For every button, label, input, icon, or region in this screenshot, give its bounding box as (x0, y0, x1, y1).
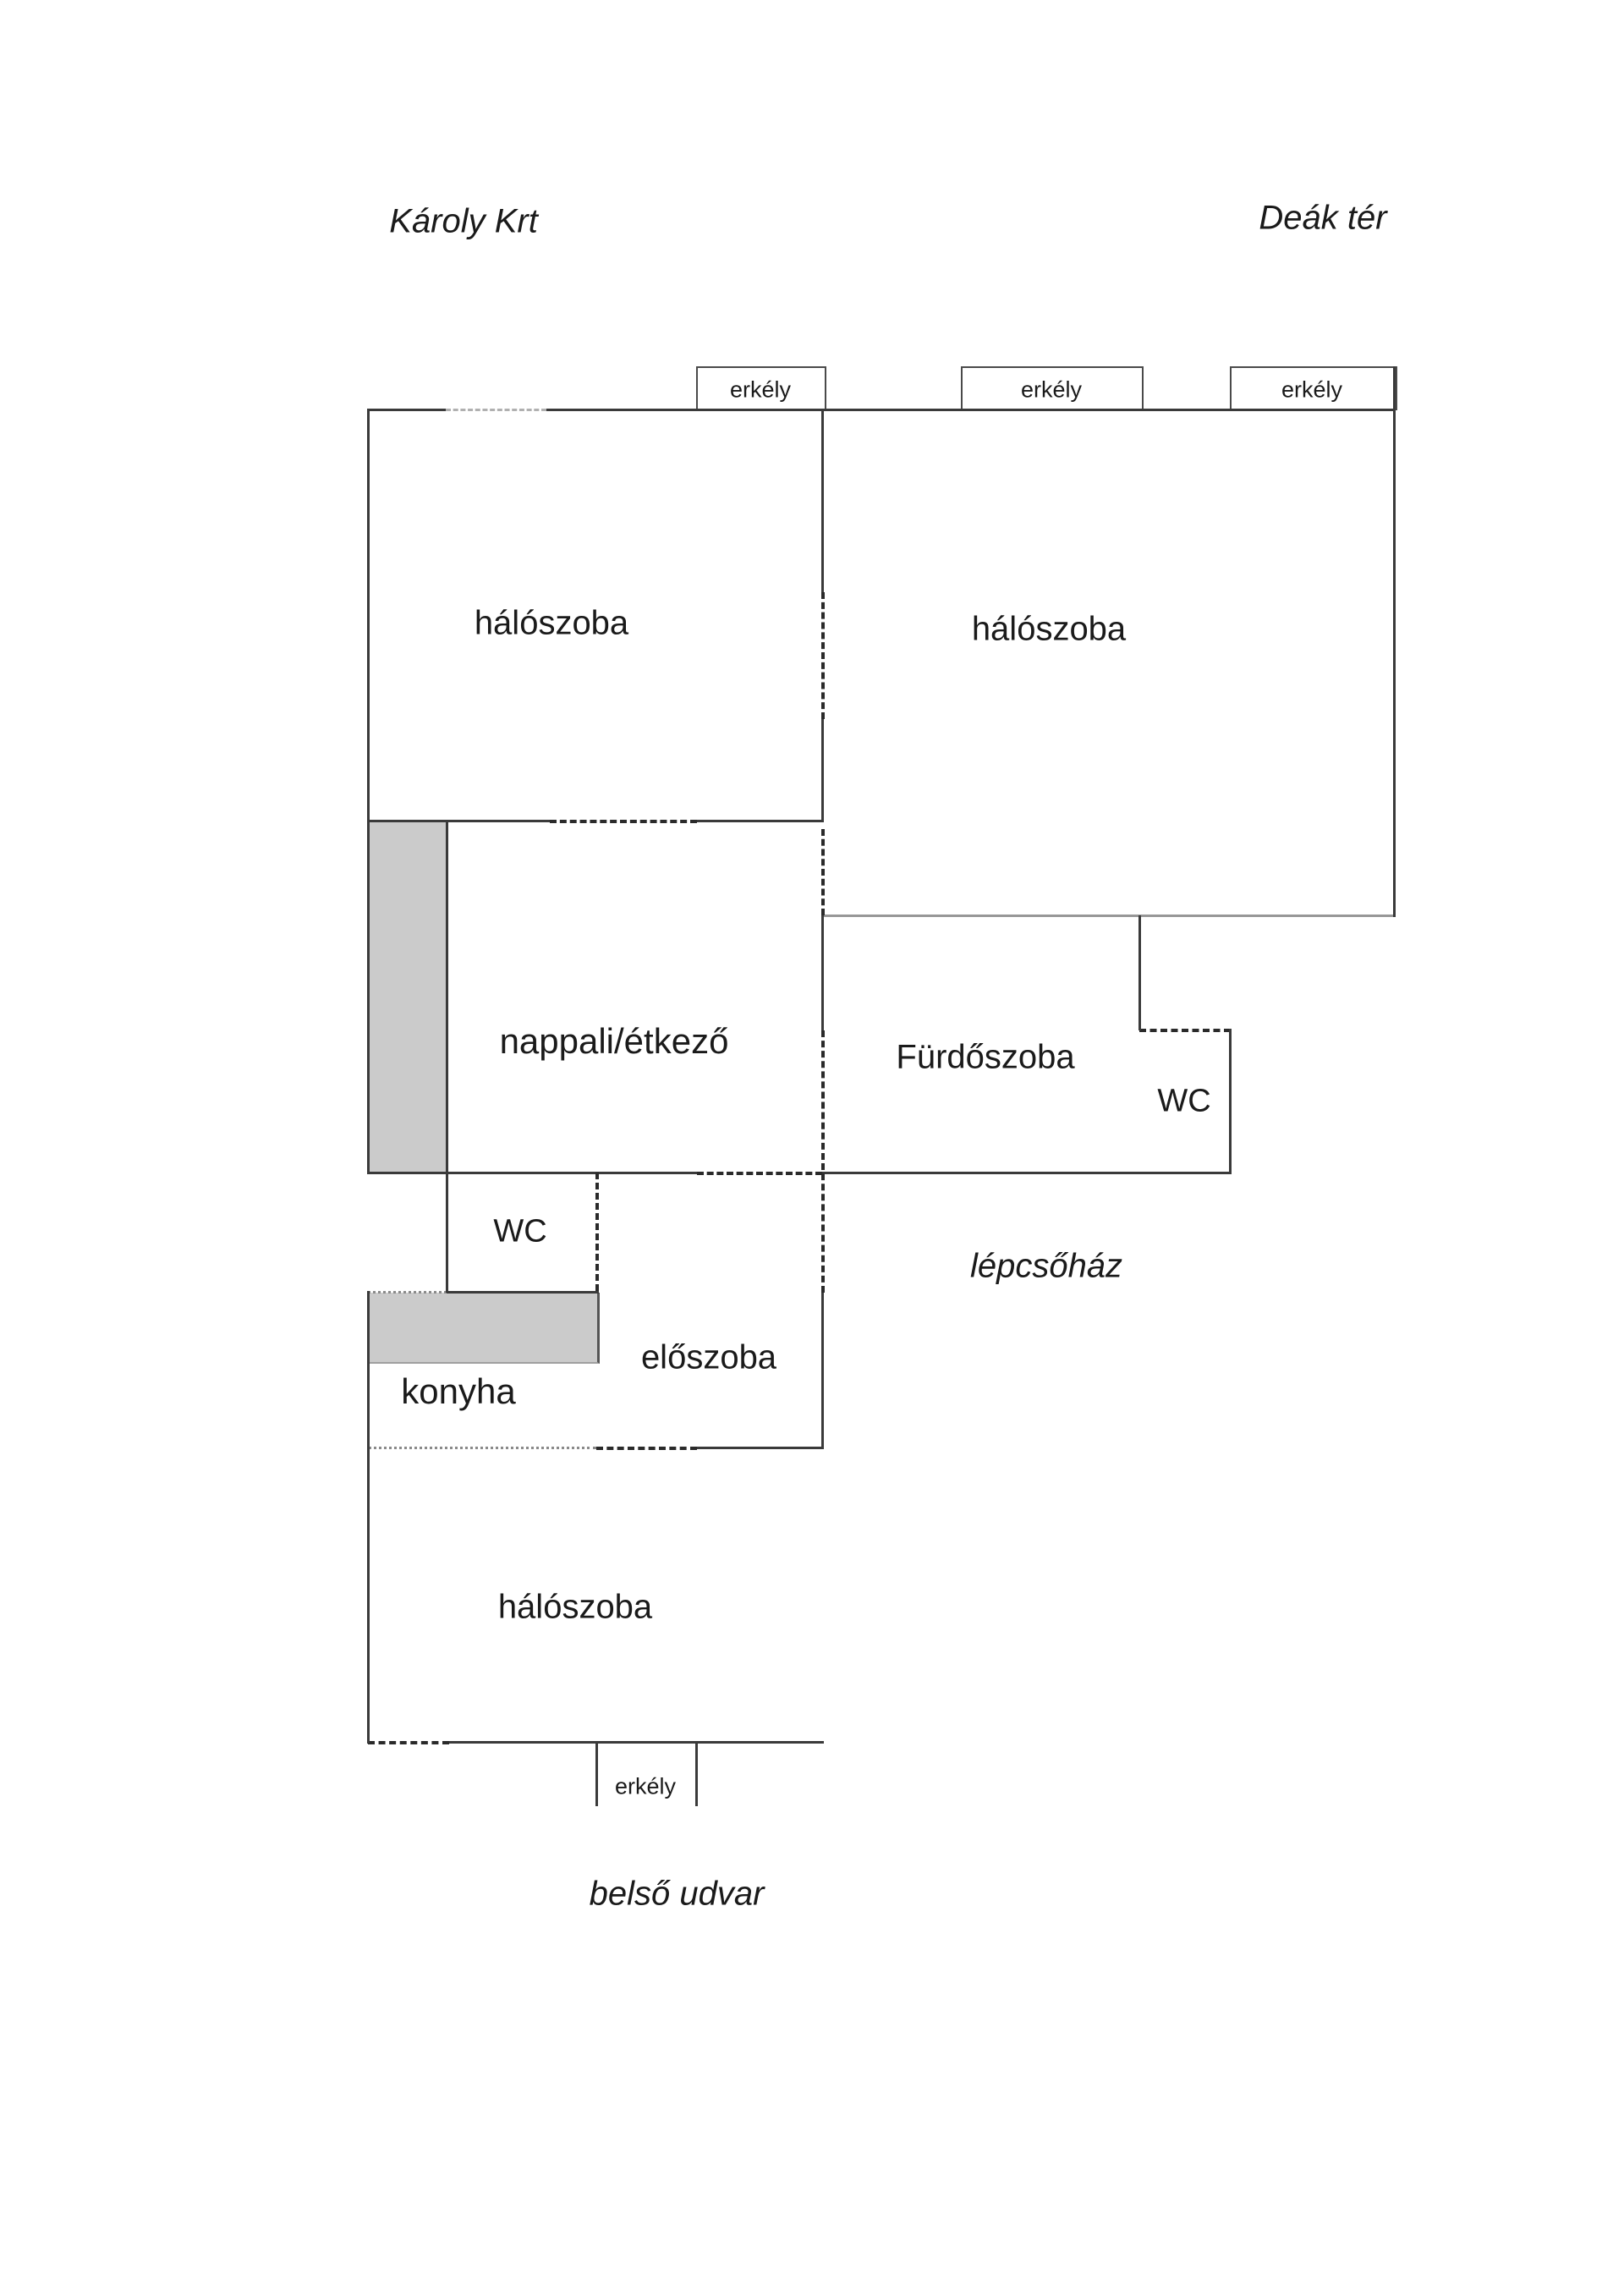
wall-segment (697, 1447, 824, 1449)
wall-segment (368, 409, 446, 411)
door-opening-segment (821, 1030, 825, 1293)
window-segment (446, 409, 546, 411)
room-label-hallway: előszoba (641, 1339, 776, 1377)
courtyard-label: belső udvar (590, 1876, 765, 1914)
room-label-wc-hall: WC (493, 1214, 546, 1250)
street-label-karoly-krt: Károly Krt (389, 203, 538, 241)
floor-plan: Károly Krt Deák tér lépcsőház belső udva… (0, 0, 1624, 2296)
wall-segment (368, 820, 550, 822)
opening-segment (368, 1447, 596, 1449)
door-opening-segment (596, 1447, 697, 1450)
room-label-bathroom: Fürdőszoba (896, 1039, 1074, 1077)
door-opening-segment (821, 829, 825, 915)
wall-segment (367, 1291, 370, 1744)
door-opening-segment (697, 1172, 822, 1175)
wall-segment (1393, 366, 1396, 917)
room-label-wc-bathroom: WC (1157, 1084, 1210, 1120)
room-label-living-dining: nappali/étkező (500, 1021, 729, 1062)
door-opening-segment (821, 592, 825, 719)
living-room-gray-block (368, 821, 447, 1173)
wall-segment (449, 1741, 824, 1744)
balcony-label-bottom: erkély (615, 1774, 676, 1800)
door-opening-segment (595, 1173, 599, 1291)
street-label-deak-ter: Deák tér (1259, 200, 1386, 238)
wall-segment (1138, 915, 1141, 1030)
room-label-kitchen: konyha (401, 1371, 515, 1412)
balcony-side-wall (595, 1743, 598, 1806)
wall-segment (821, 915, 824, 1030)
wall-segment (446, 821, 448, 1293)
wall-segment (1229, 1029, 1232, 1174)
room-label-bedroom-left: hálószoba (475, 605, 628, 643)
stairwell-label: lépcsőház (970, 1248, 1122, 1286)
window-opening-segment (368, 1741, 449, 1744)
wall-segment (822, 1172, 1231, 1174)
wall-segment (821, 409, 824, 592)
balcony-side-wall (695, 1743, 698, 1806)
wall-segment (821, 719, 824, 822)
balcony-label-top-1: erkély (730, 377, 791, 404)
balcony-label-top-2: erkély (1021, 377, 1082, 404)
balcony-label-top-3: erkély (1281, 377, 1342, 404)
wall-segment (697, 820, 824, 822)
wall-segment (447, 1291, 599, 1294)
room-label-bedroom-bottom: hálószoba (498, 1589, 652, 1627)
wall-segment (821, 1293, 824, 1448)
room-label-bedroom-right: hálószoba (972, 611, 1126, 649)
wall-segment (367, 409, 370, 1174)
kitchen-counter-block (368, 1293, 600, 1364)
wall-segment (822, 915, 1396, 917)
door-opening-segment (550, 820, 697, 823)
wall-segment (546, 409, 1396, 411)
window-opening-segment (1139, 1029, 1231, 1032)
opening-segment (368, 1291, 447, 1294)
wall-segment (368, 1172, 697, 1174)
